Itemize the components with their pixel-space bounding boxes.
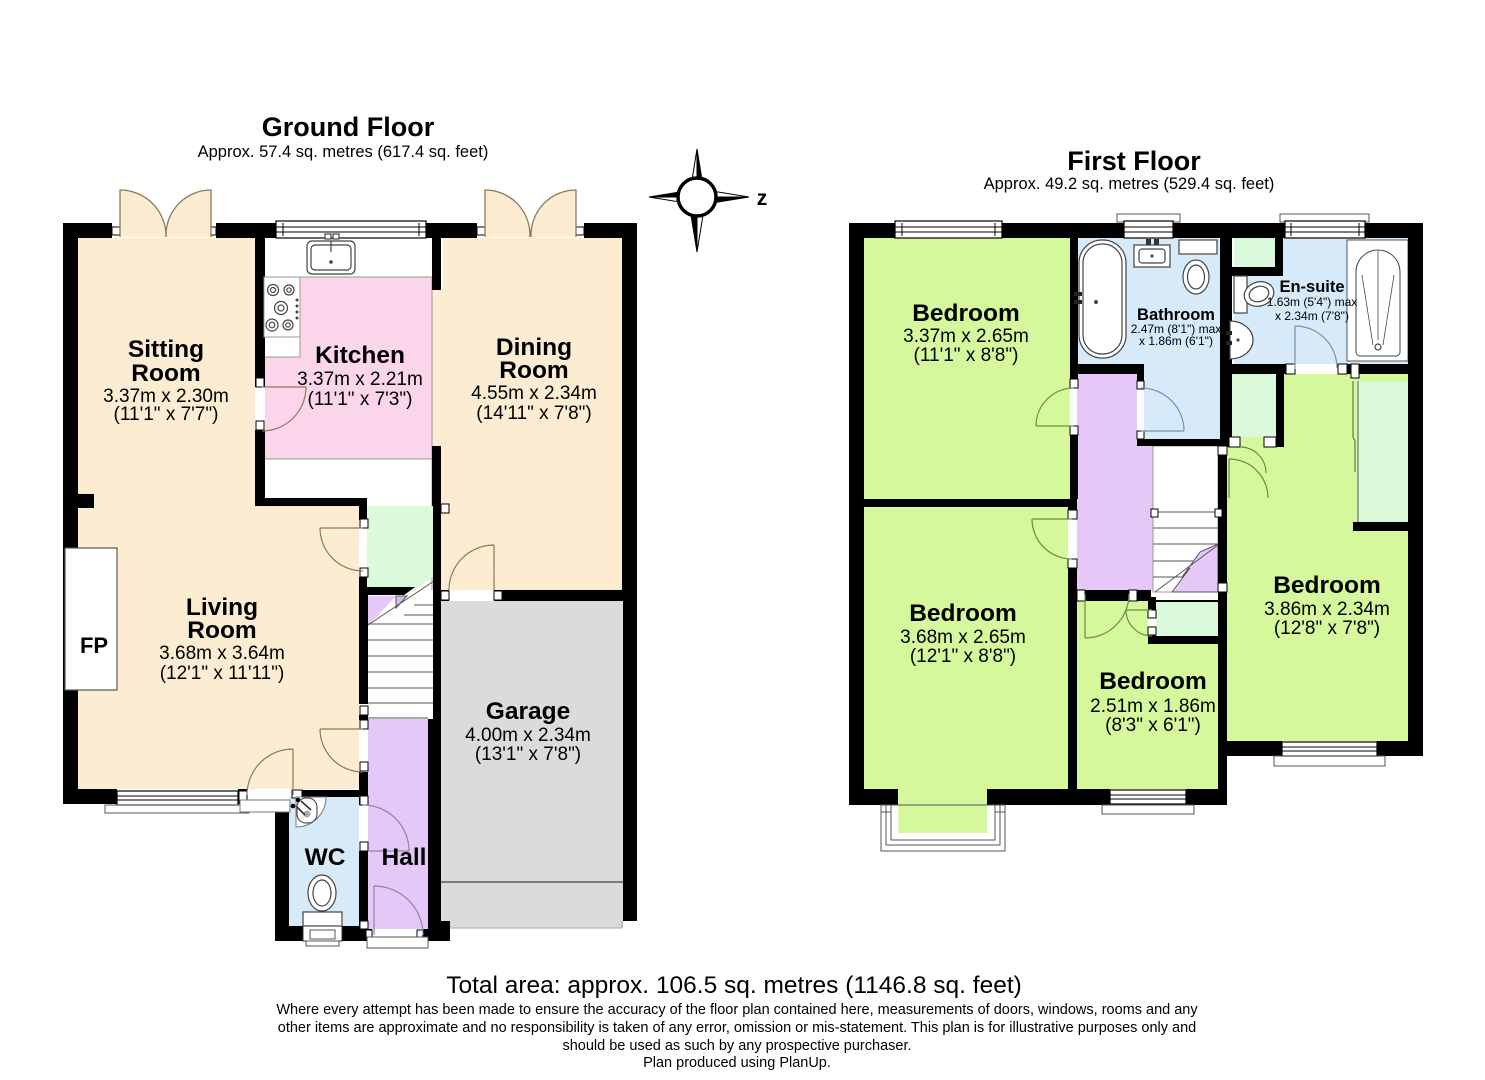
svg-text:3.68m x 3.64m: 3.68m x 3.64m — [159, 643, 285, 664]
svg-text:3.68m x 2.65m: 3.68m x 2.65m — [900, 627, 1026, 648]
svg-text:Hall: Hall — [382, 844, 427, 871]
svg-text:(13'1" x 7'8"): (13'1" x 7'8") — [475, 744, 581, 765]
svg-text:4.00m x 2.34m: 4.00m x 2.34m — [465, 725, 591, 746]
svg-text:Room: Room — [187, 617, 256, 644]
svg-text:Total area: approx. 106.5 sq.: Total area: approx. 106.5 sq. metres (11… — [446, 972, 1022, 999]
svg-text:Bedroom: Bedroom — [912, 300, 1020, 327]
svg-text:Room: Room — [131, 360, 200, 387]
svg-text:Garage: Garage — [486, 698, 570, 725]
svg-text:2.51m x 1.86m: 2.51m x 1.86m — [1090, 696, 1216, 717]
svg-text:(14'11" x 7'8"): (14'11" x 7'8") — [476, 403, 591, 424]
svg-text:1.63m (5'4") max: 1.63m (5'4") max — [1267, 295, 1358, 309]
svg-text:(11'1" x 8'8"): (11'1" x 8'8") — [914, 345, 1019, 366]
svg-text:(12'1" x 11'11"): (12'1" x 11'11") — [160, 663, 285, 684]
svg-text:(12'8" x 7'8"): (12'8" x 7'8") — [1274, 618, 1380, 639]
svg-text:z: z — [757, 187, 768, 210]
svg-text:Ground Floor: Ground Floor — [262, 112, 435, 142]
svg-text:Bedroom: Bedroom — [1273, 572, 1381, 599]
svg-text:3.86m x 2.34m: 3.86m x 2.34m — [1264, 599, 1390, 620]
svg-text:4.55m x 2.34m: 4.55m x 2.34m — [471, 383, 597, 404]
svg-text:Bedroom: Bedroom — [1099, 668, 1207, 695]
svg-text:x 2.34m (7'8"): x 2.34m (7'8") — [1275, 309, 1349, 323]
svg-text:FP: FP — [80, 633, 108, 658]
svg-text:x 1.86m (6'1"): x 1.86m (6'1") — [1139, 334, 1213, 348]
svg-text:Plan produced using PlanUp.: Plan produced using PlanUp. — [643, 1055, 831, 1071]
svg-text:Room: Room — [499, 357, 568, 384]
svg-text:Kitchen: Kitchen — [315, 342, 405, 369]
svg-text:(8'3" x 6'1"): (8'3" x 6'1") — [1105, 715, 1201, 736]
svg-text:Sitting: Sitting — [128, 336, 204, 363]
svg-text:other items are approximate an: other items are approximate and no respo… — [278, 1020, 1197, 1036]
svg-text:(11'1" x 7'7"): (11'1" x 7'7") — [114, 404, 219, 425]
svg-text:En-suite: En-suite — [1279, 278, 1344, 296]
svg-text:(11'1" x 7'3"): (11'1" x 7'3") — [308, 389, 413, 410]
svg-text:3.37m x 2.21m: 3.37m x 2.21m — [297, 369, 423, 390]
svg-text:Approx. 57.4 sq. metres (617.4: Approx. 57.4 sq. metres (617.4 sq. feet) — [198, 143, 489, 161]
svg-text:(12'1" x 8'8"): (12'1" x 8'8") — [910, 646, 1016, 667]
svg-text:should be used as such by any: should be used as such by any prospectiv… — [562, 1038, 911, 1054]
svg-text:First Floor: First Floor — [1067, 146, 1201, 176]
svg-text:WC: WC — [305, 844, 346, 871]
svg-text:Where every attempt has been m: Where every attempt has been made to ens… — [276, 1002, 1198, 1018]
svg-text:Approx. 49.2 sq. metres (529.4: Approx. 49.2 sq. metres (529.4 sq. feet) — [984, 175, 1275, 193]
svg-text:3.37m x 2.65m: 3.37m x 2.65m — [903, 326, 1029, 347]
svg-text:Bedroom: Bedroom — [909, 600, 1017, 627]
